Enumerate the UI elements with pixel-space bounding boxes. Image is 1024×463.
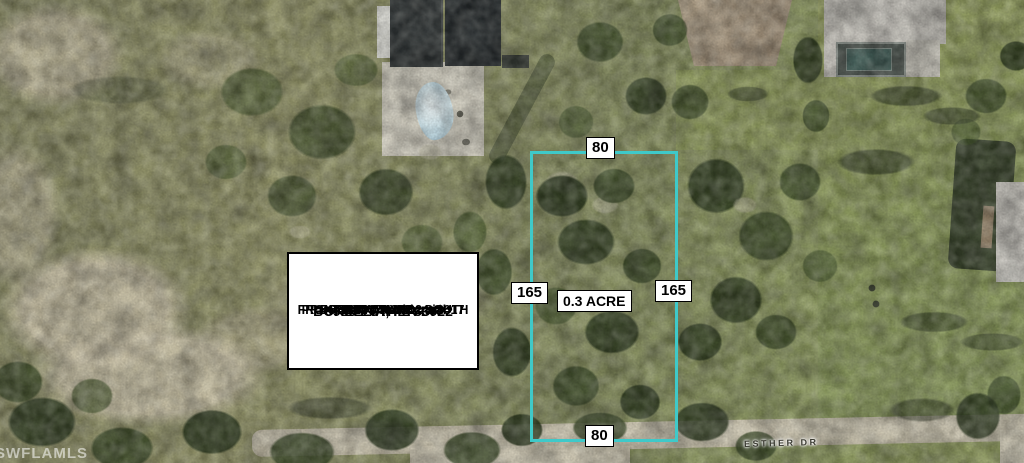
aerial-parcel-map: 80 80 165 165 0.3 ACRE 5986 ESTHER DR BO… bbox=[0, 0, 1024, 463]
dimension-label-bottom-width: 80 bbox=[585, 425, 614, 447]
property-info-box: 5986 ESTHER DR BOKEELIA, FL 33922 ======… bbox=[287, 252, 479, 370]
dimension-label-top-width: 80 bbox=[586, 137, 615, 159]
hoa-line: NO HOA bbox=[358, 303, 408, 319]
dimension-label-left-depth: 165 bbox=[511, 282, 548, 304]
annotation-overlay: 80 80 165 165 0.3 ACRE 5986 ESTHER DR BO… bbox=[0, 0, 1024, 463]
lot-area-label: 0.3 ACRE bbox=[557, 290, 632, 312]
mls-watermark: SWFLAMLS bbox=[0, 445, 88, 462]
dimension-label-right-depth: 165 bbox=[655, 280, 692, 302]
street-name-label: ESTHER DR bbox=[744, 437, 819, 449]
